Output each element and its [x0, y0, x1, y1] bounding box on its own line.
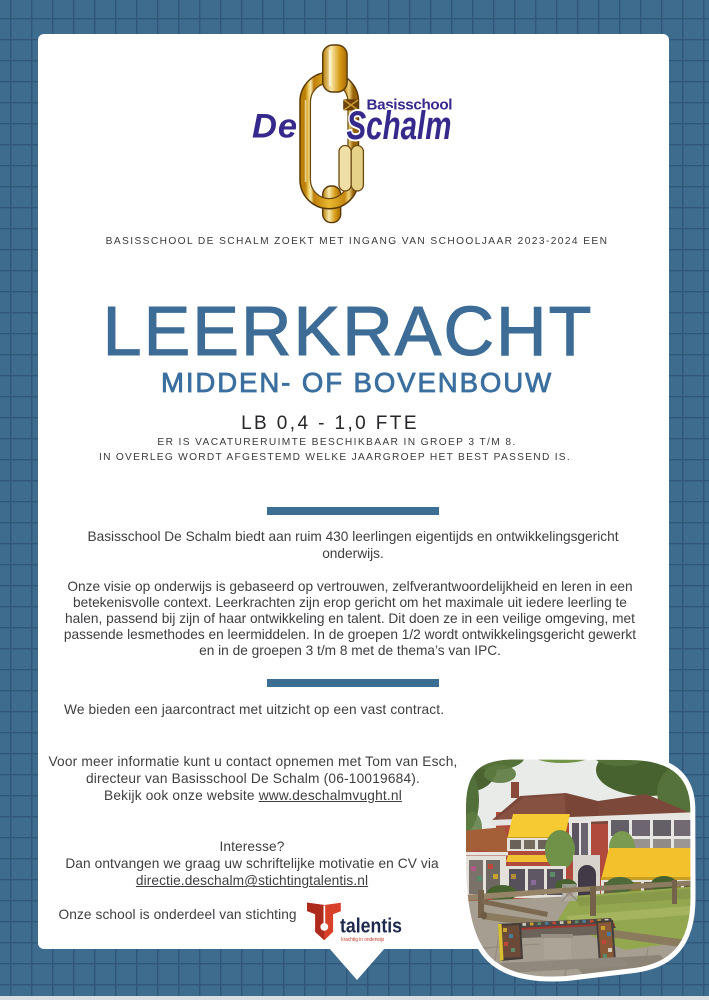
svg-text:talentis: talentis: [340, 914, 402, 937]
svg-text:krachtig in onderwijs: krachtig in onderwijs: [341, 937, 384, 943]
svg-text:Schalm: Schalm: [347, 104, 452, 148]
svg-text:De: De: [252, 108, 297, 146]
